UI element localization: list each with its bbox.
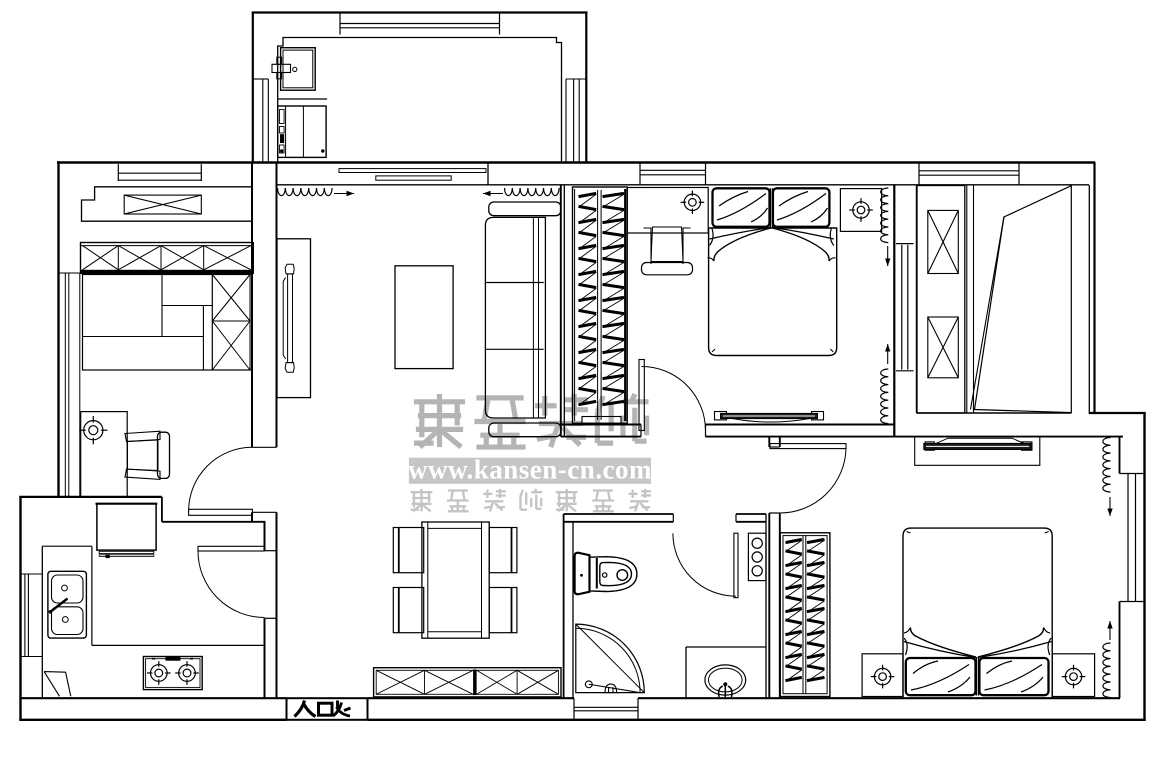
svg-text:www.kansen-cn.com: www.kansen-cn.com [408,455,652,485]
